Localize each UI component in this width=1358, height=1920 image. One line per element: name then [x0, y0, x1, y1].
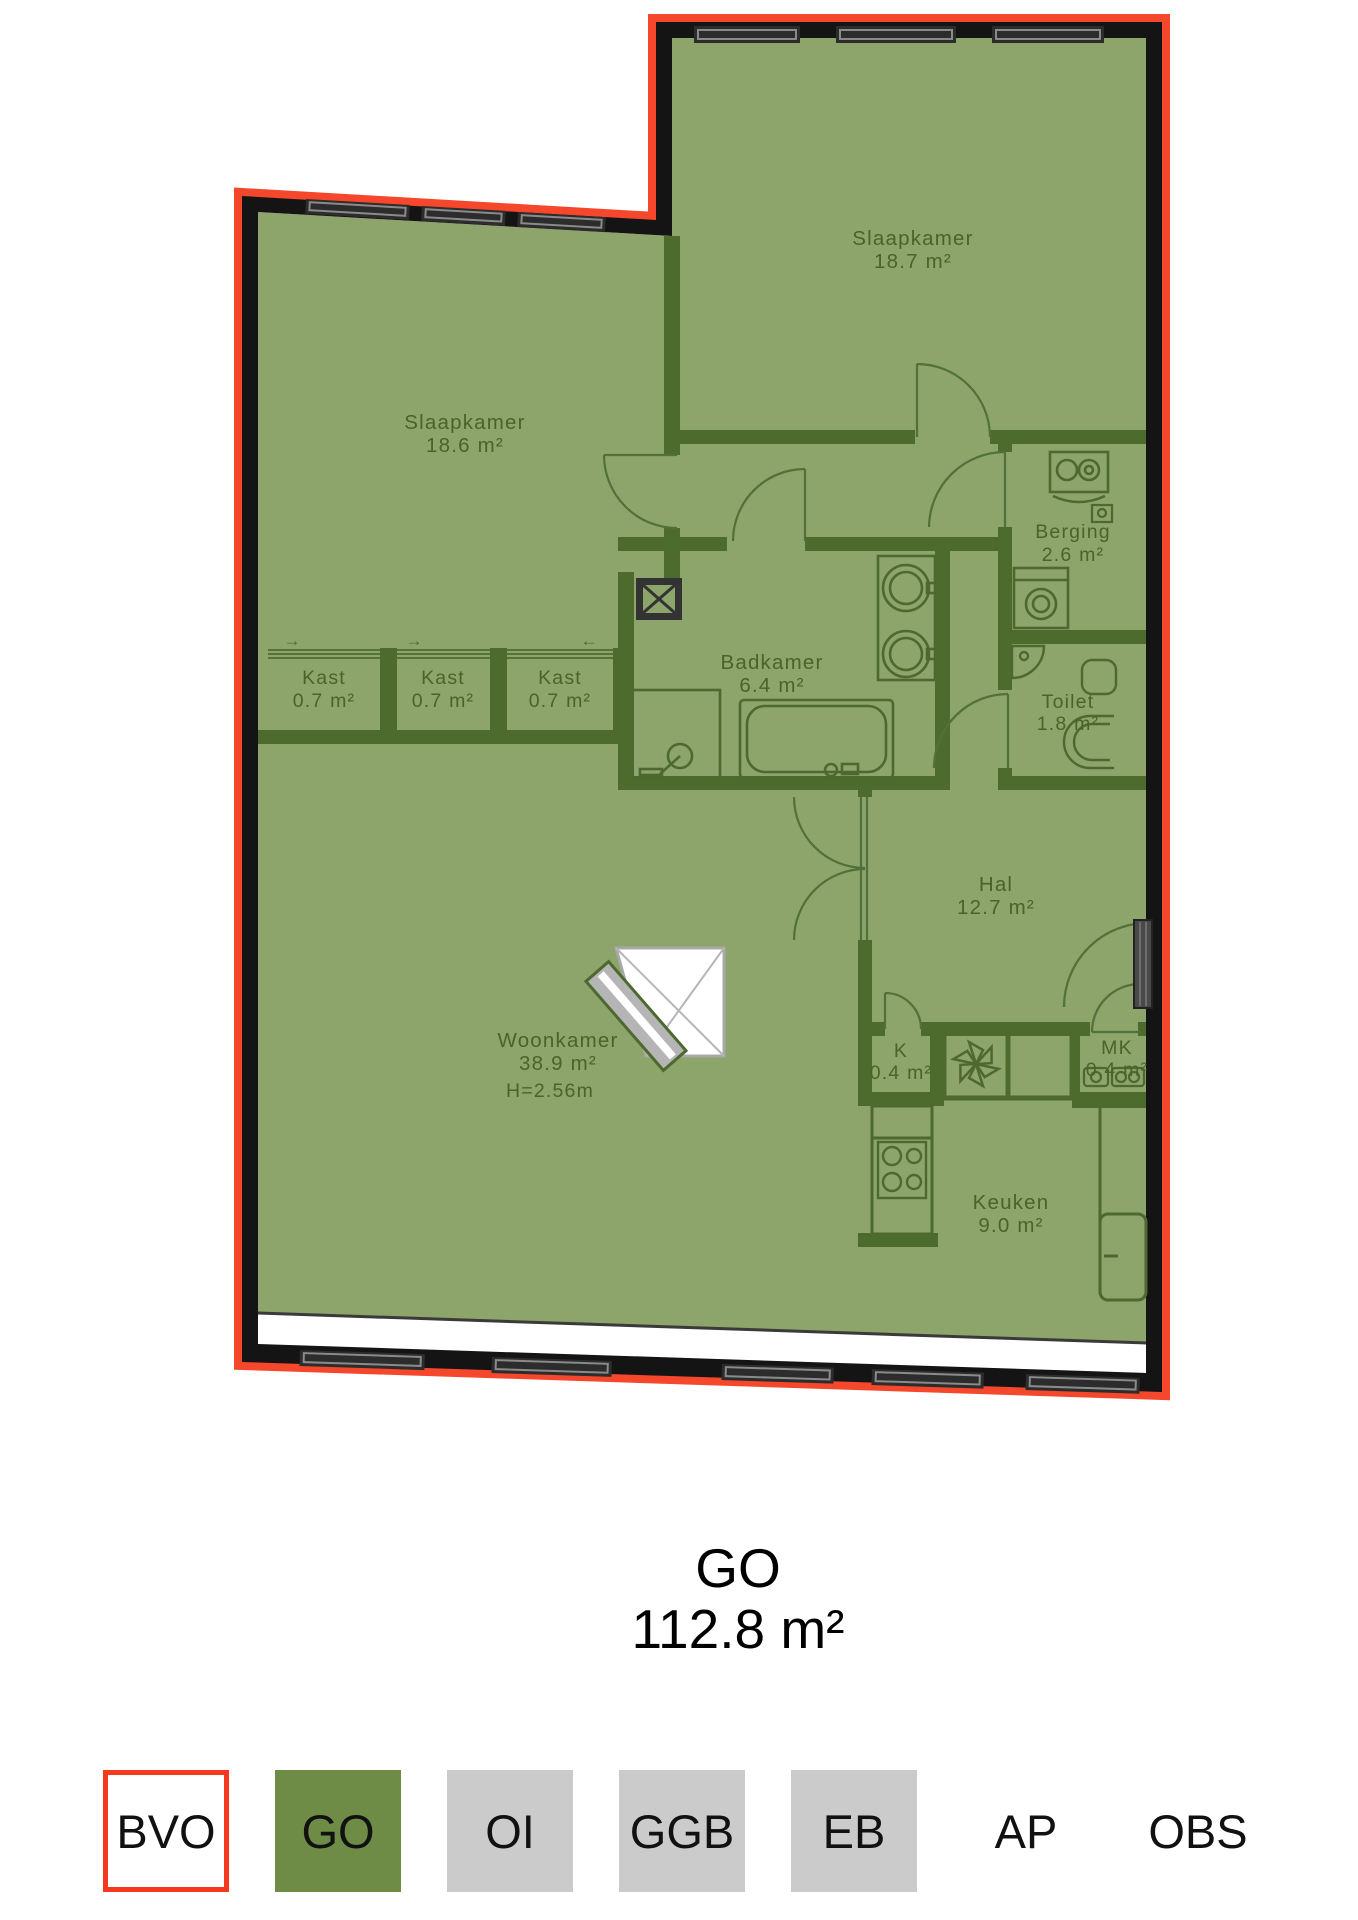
legend-item-bvo: BVO [103, 1770, 229, 1892]
svg-text:Berging: Berging [1035, 521, 1111, 543]
sliding-arrow: → [406, 631, 423, 650]
legend-item-go: GO [275, 1770, 401, 1892]
legend-item-ap: AP [963, 1770, 1089, 1892]
svg-text:0.7 m²: 0.7 m² [412, 690, 474, 712]
legend-label: BVO [116, 1804, 215, 1859]
shaft-x-icon [636, 578, 682, 620]
svg-text:0.7 m²: 0.7 m² [293, 690, 355, 712]
svg-text:Slaapkamer: Slaapkamer [404, 411, 525, 434]
svg-text:2.6 m²: 2.6 m² [1042, 544, 1104, 566]
svg-text:Toilet: Toilet [1042, 691, 1095, 713]
svg-text:0.4 m²: 0.4 m² [1086, 1059, 1148, 1081]
legend-label: OBS [1148, 1804, 1247, 1859]
svg-text:0.4 m²: 0.4 m² [870, 1062, 932, 1084]
svg-text:38.9 m²: 38.9 m² [519, 1052, 597, 1075]
svg-text:Badkamer: Badkamer [720, 651, 823, 674]
legend-label: GGB [630, 1804, 734, 1859]
legend-label: AP [995, 1804, 1058, 1859]
svg-text:Kast: Kast [421, 667, 465, 689]
sliding-arrow: ← [581, 631, 598, 650]
legend-label: GO [301, 1804, 374, 1859]
svg-text:9.0 m²: 9.0 m² [978, 1214, 1043, 1237]
area-summary-value: 112.8 m² [632, 1599, 845, 1660]
window-icon [694, 26, 1104, 43]
room-label-keuken: Keuken 9.0 m² [973, 1191, 1050, 1237]
svg-text:Kast: Kast [302, 667, 346, 689]
floor-plan: → → ← Slaapkamer 18.7 m² Slaapkamer 18.6… [0, 0, 1358, 1470]
svg-text:1.8 m²: 1.8 m² [1037, 713, 1099, 735]
svg-text:0.7 m²: 0.7 m² [529, 690, 591, 712]
room-label-kast-3: Kast 0.7 m² [529, 667, 591, 712]
room-label-kast-1: Kast 0.7 m² [293, 667, 355, 712]
svg-text:H=2.56m: H=2.56m [506, 1080, 594, 1102]
legend-label: EB [823, 1804, 886, 1859]
svg-text:Woonkamer: Woonkamer [498, 1029, 619, 1052]
svg-text:Hal: Hal [979, 873, 1013, 896]
legend-label: OI [485, 1804, 535, 1859]
svg-text:18.7 m²: 18.7 m² [874, 250, 952, 273]
legend-item-obs: OBS [1135, 1770, 1261, 1892]
legend-item-ggb: GGB [619, 1770, 745, 1892]
svg-text:K: K [894, 1040, 908, 1062]
area-summary-label: GO [632, 1538, 845, 1599]
entrance-door-icon [1134, 920, 1152, 1008]
room-label-toilet: Toilet 1.8 m² [1037, 691, 1099, 735]
svg-text:Keuken: Keuken [973, 1191, 1050, 1214]
svg-text:Slaapkamer: Slaapkamer [852, 227, 973, 250]
legend-item-eb: EB [791, 1770, 917, 1892]
legend: BVO GO OI GGB EB AP OBS [103, 1770, 1261, 1892]
svg-text:18.6 m²: 18.6 m² [426, 434, 504, 457]
legend-item-oi: OI [447, 1770, 573, 1892]
svg-text:12.7 m²: 12.7 m² [957, 896, 1035, 919]
sliding-arrow: → [284, 631, 301, 650]
svg-text:Kast: Kast [538, 667, 582, 689]
room-label-kast-2: Kast 0.7 m² [412, 667, 474, 712]
area-summary: GO 112.8 m² [632, 1538, 845, 1660]
svg-text:MK: MK [1101, 1037, 1133, 1059]
floorplan-page: → → ← Slaapkamer 18.7 m² Slaapkamer 18.6… [0, 0, 1358, 1920]
room-label-berging: Berging 2.6 m² [1035, 521, 1111, 566]
svg-text:6.4 m²: 6.4 m² [739, 674, 804, 697]
